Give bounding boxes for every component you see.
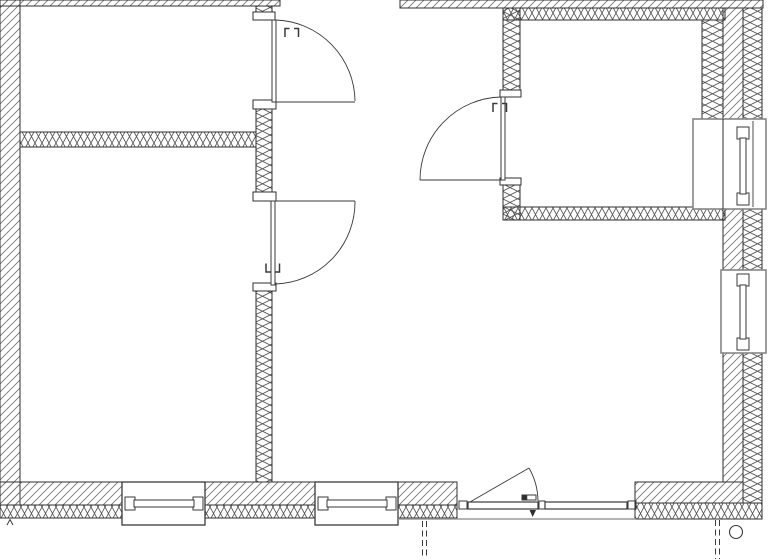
coldroom-left-wall-lower — [503, 185, 520, 220]
top-exterior-wall-left — [0, 0, 280, 6]
floor-plan-svg — [0, 0, 768, 560]
window-3-frame-bottom — [737, 193, 749, 205]
door-b-leaf — [271, 201, 275, 285]
coldroom-right-lining — [702, 20, 723, 123]
window-4-frame-bottom — [737, 338, 749, 350]
right-wall-outer-insulation-mid — [743, 207, 762, 270]
bottom-exterior-wall-right — [635, 482, 743, 503]
coldroom-left-wall-upper — [503, 8, 520, 90]
top-exterior-wall-right — [400, 0, 763, 8]
partition-wall-vertical-upper — [256, 109, 272, 193]
partition-wall-horizontal — [20, 132, 256, 147]
door-b-top-jamb — [253, 192, 276, 201]
window-1-glazing — [134, 500, 194, 507]
entry-door-side-panel — [545, 502, 627, 509]
window-2-glazing — [327, 500, 387, 507]
window-3-box — [693, 119, 766, 209]
coldroom-door-leaf — [501, 97, 505, 180]
right-wall-outer-insulation-upper — [743, 8, 762, 123]
window-4-frame-top — [737, 274, 749, 286]
floor-plan — [0, 0, 768, 560]
window-3-frame-top — [737, 127, 749, 139]
coldroom-top-lining — [503, 8, 725, 20]
right-exterior-wall-upper — [723, 8, 743, 123]
coldroom-door-top-jamb — [500, 90, 521, 97]
right-exterior-wall-mid — [723, 207, 743, 270]
door-a-top-jamb — [253, 12, 275, 20]
door-a-leaf — [272, 20, 276, 102]
bottom-wall-outer-insulation-right — [635, 503, 762, 519]
entry-door-leaf — [468, 502, 538, 509]
entry-door-handle-knob — [522, 495, 527, 500]
partition-wall-vertical-lower — [256, 290, 272, 482]
right-exterior-wall-lower — [723, 353, 743, 482]
right-wall-outer-insulation-lower — [743, 353, 762, 503]
inspection-shaft-circle — [730, 526, 743, 539]
coldroom-bottom-lining — [503, 207, 725, 220]
plan-background — [0, 0, 768, 560]
left-exterior-wall — [0, 0, 20, 505]
window-3-glazing — [740, 138, 746, 194]
window-4-glazing — [740, 285, 746, 339]
